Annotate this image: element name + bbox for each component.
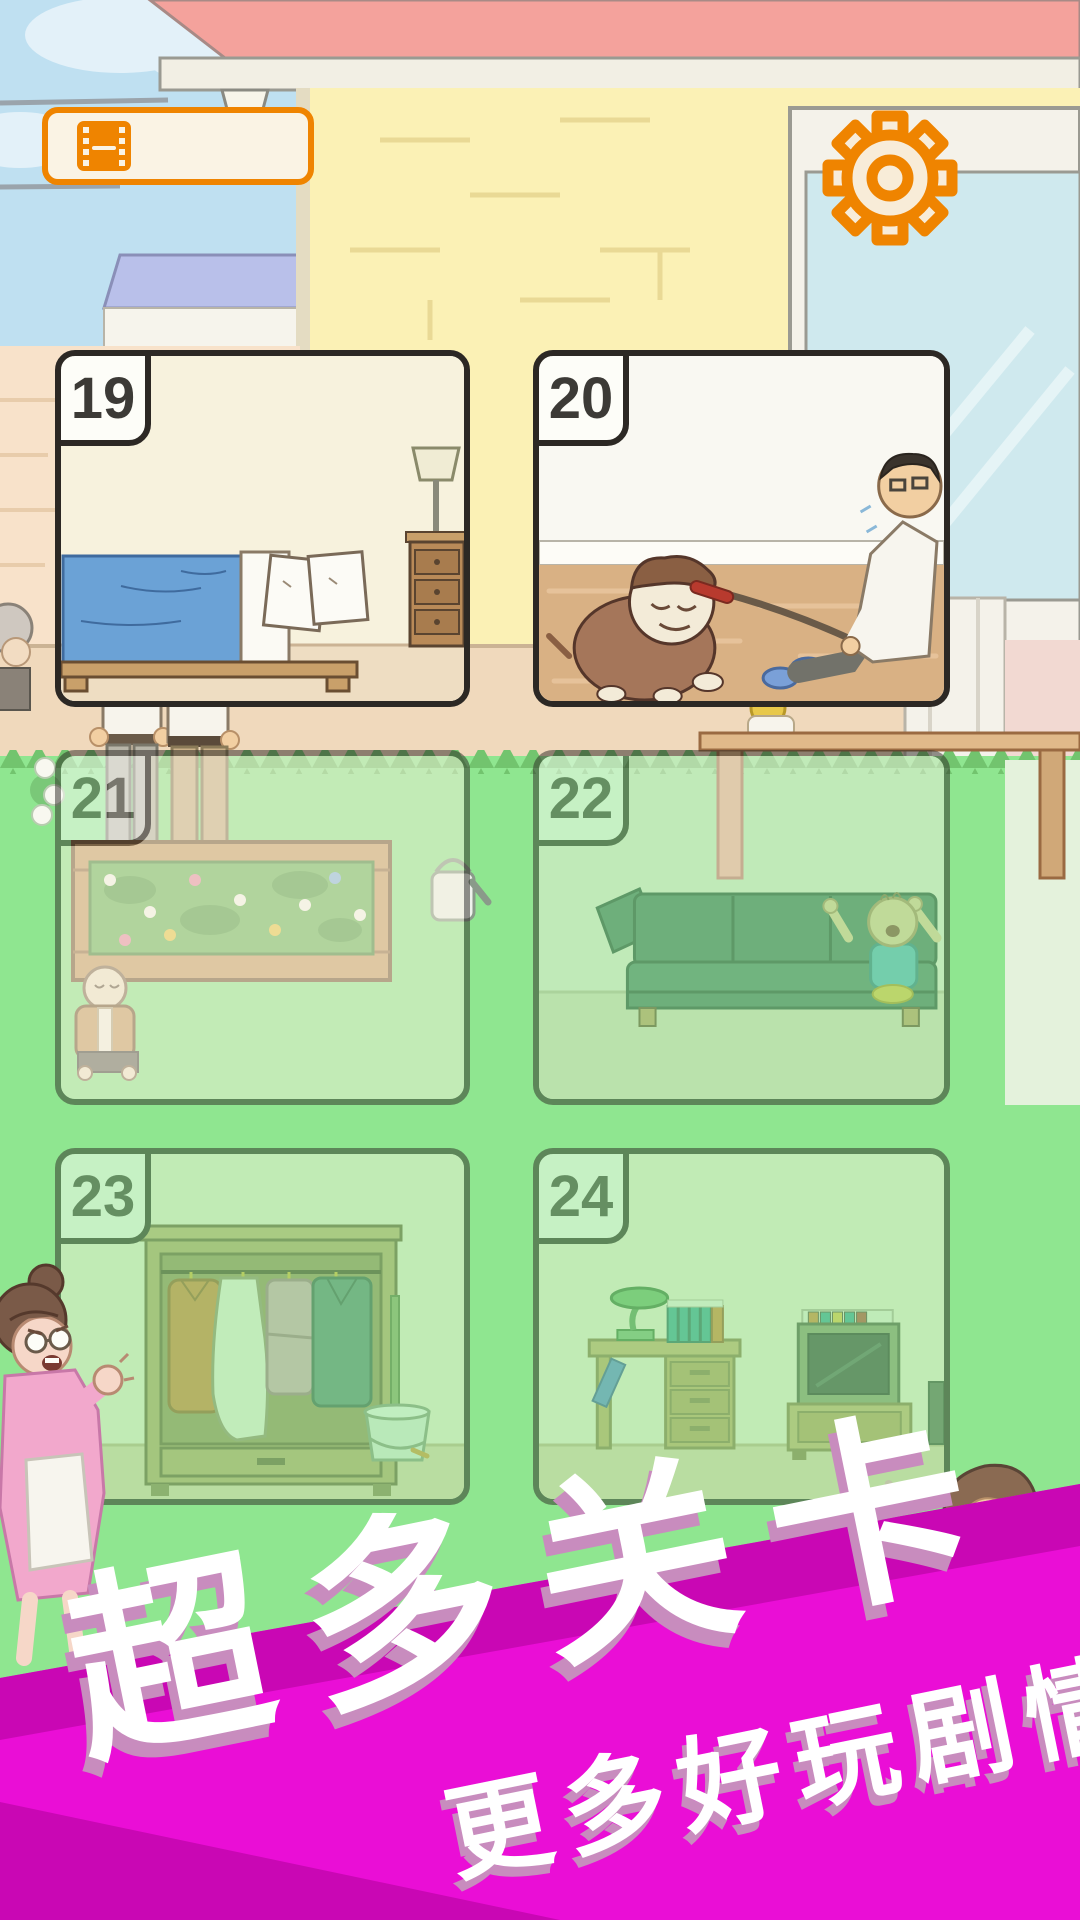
granny-sprite [0, 604, 32, 710]
replay-button[interactable] [42, 107, 314, 185]
settings-button[interactable] [820, 108, 960, 248]
level-number: 21 [71, 765, 136, 832]
level-card-22[interactable]: 22 [533, 750, 950, 1105]
level-card-20[interactable]: 20 [533, 350, 950, 707]
level-number: 23 [71, 1163, 136, 1230]
roof [150, 0, 1080, 58]
level-number: 24 [549, 1163, 614, 1230]
level-number-badge: 20 [533, 350, 629, 446]
game-level-select-screen: 19 [0, 0, 1080, 1920]
level-number: 19 [71, 365, 136, 432]
level-number-badge: 19 [55, 350, 151, 446]
level-number-badge: 24 [533, 1148, 629, 1244]
level-number-badge: 23 [55, 1148, 151, 1244]
level-number-badge: 21 [55, 750, 151, 846]
gear-icon [820, 108, 960, 248]
roof-eave [160, 58, 1080, 90]
level-number: 20 [549, 365, 614, 432]
level-number: 22 [549, 765, 614, 832]
level-card-21[interactable]: 21 [55, 750, 470, 1105]
level-card-19[interactable]: 19 [55, 350, 470, 707]
level-number-badge: 22 [533, 750, 629, 846]
film-strip-icon [76, 120, 132, 172]
